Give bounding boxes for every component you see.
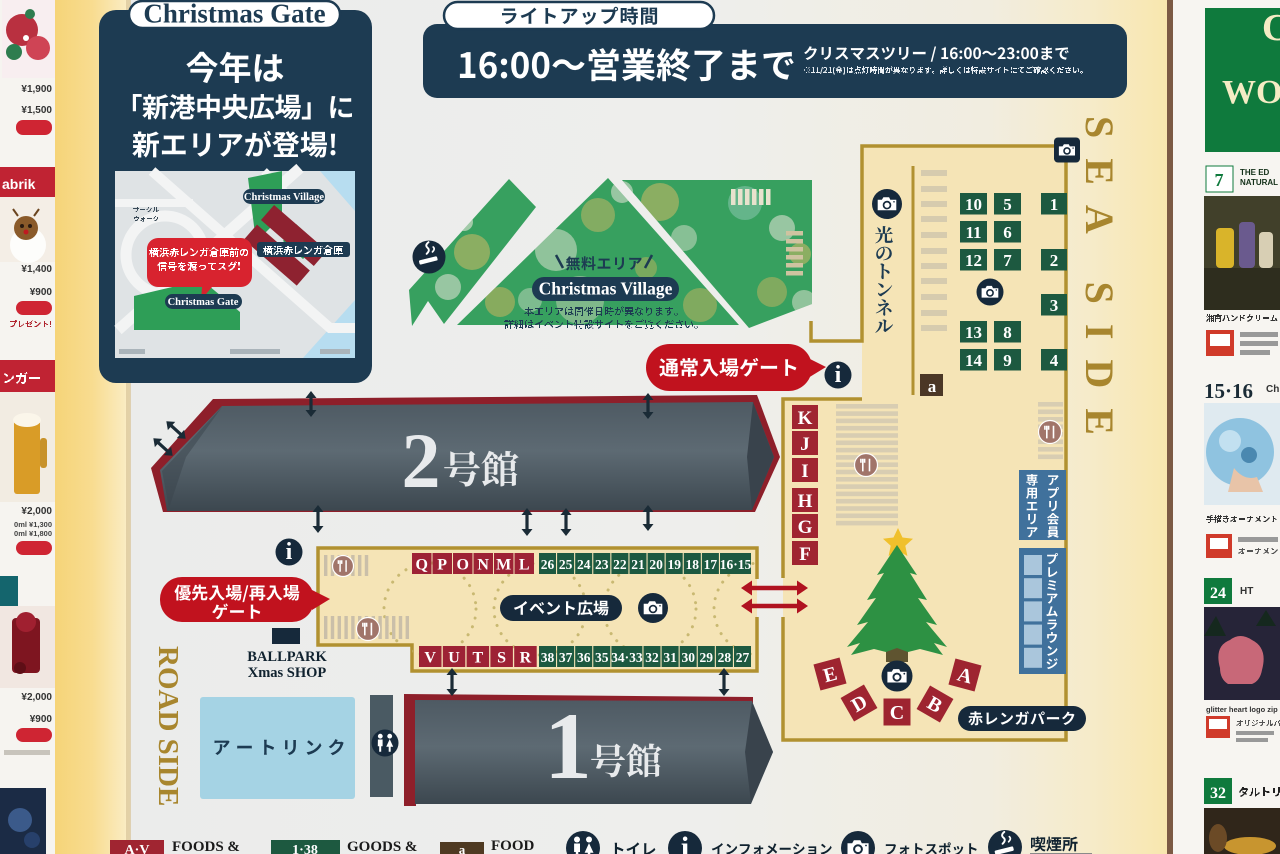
svg-text:1: 1 <box>544 693 592 799</box>
svg-text:Xmas SHOP: Xmas SHOP <box>248 665 327 681</box>
svg-text:4: 4 <box>1050 351 1059 370</box>
svg-text:SEA SIDE: SEA SIDE <box>1077 116 1122 455</box>
svg-text:I: I <box>801 461 808 482</box>
svg-text:7: 7 <box>1215 170 1224 190</box>
svg-text:¥900: ¥900 <box>30 714 53 725</box>
svg-text:25: 25 <box>559 557 573 572</box>
svg-text:NATURAL S: NATURAL S <box>1240 178 1280 187</box>
svg-text:32: 32 <box>1210 785 1226 802</box>
svg-text:a: a <box>459 842 466 854</box>
svg-text:Christmas Gate: Christmas Gate <box>143 0 325 29</box>
svg-text:24: 24 <box>1210 585 1226 602</box>
svg-text:2: 2 <box>402 417 441 504</box>
svg-text:T: T <box>472 650 483 667</box>
svg-text:27: 27 <box>736 650 750 665</box>
svg-text:¥900: ¥900 <box>30 287 53 298</box>
svg-text:i: i <box>286 539 293 565</box>
svg-text:19: 19 <box>667 557 681 572</box>
svg-text:12: 12 <box>965 251 982 270</box>
svg-text:i: i <box>681 831 689 854</box>
svg-text:V: V <box>424 650 436 667</box>
svg-text:FOOD: FOOD <box>491 838 534 854</box>
svg-text:C: C <box>1262 7 1280 49</box>
svg-text:¥1,900: ¥1,900 <box>21 84 52 95</box>
svg-text:6: 6 <box>1003 223 1012 242</box>
svg-text:F: F <box>799 544 811 565</box>
svg-text:BALLPARK: BALLPARK <box>247 649 327 665</box>
svg-text:7: 7 <box>1003 251 1012 270</box>
svg-text:21: 21 <box>631 557 645 572</box>
svg-text:i: i <box>835 362 842 388</box>
svg-text:13: 13 <box>965 323 982 342</box>
svg-text:Christmas Gate: Christmas Gate <box>168 297 239 308</box>
svg-text:Christmas Village: Christmas Village <box>539 279 673 299</box>
svg-text:31: 31 <box>663 650 677 665</box>
svg-text:0ml ¥1,800: 0ml ¥1,800 <box>14 529 52 538</box>
svg-text:30: 30 <box>681 650 695 665</box>
svg-text:20: 20 <box>649 557 663 572</box>
svg-text:29: 29 <box>700 650 714 665</box>
svg-text:THE ED: THE ED <box>1240 168 1270 177</box>
svg-text:5: 5 <box>1003 195 1012 214</box>
svg-text:H: H <box>798 491 813 512</box>
svg-text:32: 32 <box>645 650 659 665</box>
svg-text:38: 38 <box>541 650 555 665</box>
svg-text:¥2,000: ¥2,000 <box>21 506 52 517</box>
svg-text:S: S <box>497 650 506 667</box>
svg-text:O: O <box>456 557 468 574</box>
svg-text:K: K <box>798 408 813 429</box>
svg-text:22: 22 <box>613 557 627 572</box>
svg-text:ROAD SIDE: ROAD SIDE <box>152 646 184 806</box>
svg-text:¥1,400: ¥1,400 <box>21 264 52 275</box>
svg-text:1·38: 1·38 <box>292 843 318 854</box>
svg-text:15·16: 15·16 <box>1204 379 1253 403</box>
svg-text:1: 1 <box>1050 195 1059 214</box>
svg-text:¥2,000: ¥2,000 <box>21 692 52 703</box>
svg-text:a: a <box>928 377 937 396</box>
svg-text:HT: HT <box>1240 586 1253 597</box>
svg-text:34·33: 34·33 <box>611 650 643 665</box>
svg-text:Q: Q <box>415 557 427 574</box>
svg-text:N: N <box>477 557 489 574</box>
svg-text:11: 11 <box>965 223 981 242</box>
svg-text:FOODS &: FOODS & <box>172 839 240 854</box>
svg-text:glitter heart logo zip hood: glitter heart logo zip hood <box>1206 705 1280 714</box>
svg-text:8: 8 <box>1003 323 1012 342</box>
svg-text:P: P <box>437 557 447 574</box>
svg-text:C: C <box>890 702 904 724</box>
svg-text:2: 2 <box>1050 251 1059 270</box>
svg-text:28: 28 <box>718 650 732 665</box>
svg-text:WO: WO <box>1222 74 1280 111</box>
svg-text:GOODS &: GOODS & <box>347 839 417 854</box>
svg-text:G: G <box>798 517 813 538</box>
svg-text:A·V: A·V <box>125 843 150 854</box>
svg-text:37: 37 <box>559 650 573 665</box>
svg-text:R: R <box>520 650 532 667</box>
svg-text:23: 23 <box>595 557 609 572</box>
svg-text:24: 24 <box>577 557 591 572</box>
svg-text:Christmas Village: Christmas Village <box>244 192 325 203</box>
svg-text:J: J <box>800 434 810 455</box>
svg-text:abrik: abrik <box>2 176 36 192</box>
svg-text:16·15: 16·15 <box>720 557 752 572</box>
svg-text:14: 14 <box>965 351 983 370</box>
svg-text:Ch: Ch <box>1266 384 1279 395</box>
svg-text:M: M <box>496 557 511 574</box>
svg-text:3: 3 <box>1050 296 1059 315</box>
svg-text:¥1,500: ¥1,500 <box>21 105 52 116</box>
svg-text:U: U <box>448 650 460 667</box>
svg-text:0ml ¥1,300: 0ml ¥1,300 <box>14 520 52 529</box>
svg-text:18: 18 <box>686 557 700 572</box>
svg-text:17: 17 <box>704 557 718 572</box>
svg-text:36: 36 <box>577 650 591 665</box>
svg-text:9: 9 <box>1003 351 1012 370</box>
svg-text:10: 10 <box>965 195 982 214</box>
svg-text:35: 35 <box>595 650 609 665</box>
svg-text:26: 26 <box>541 557 555 572</box>
svg-text:L: L <box>519 557 530 574</box>
